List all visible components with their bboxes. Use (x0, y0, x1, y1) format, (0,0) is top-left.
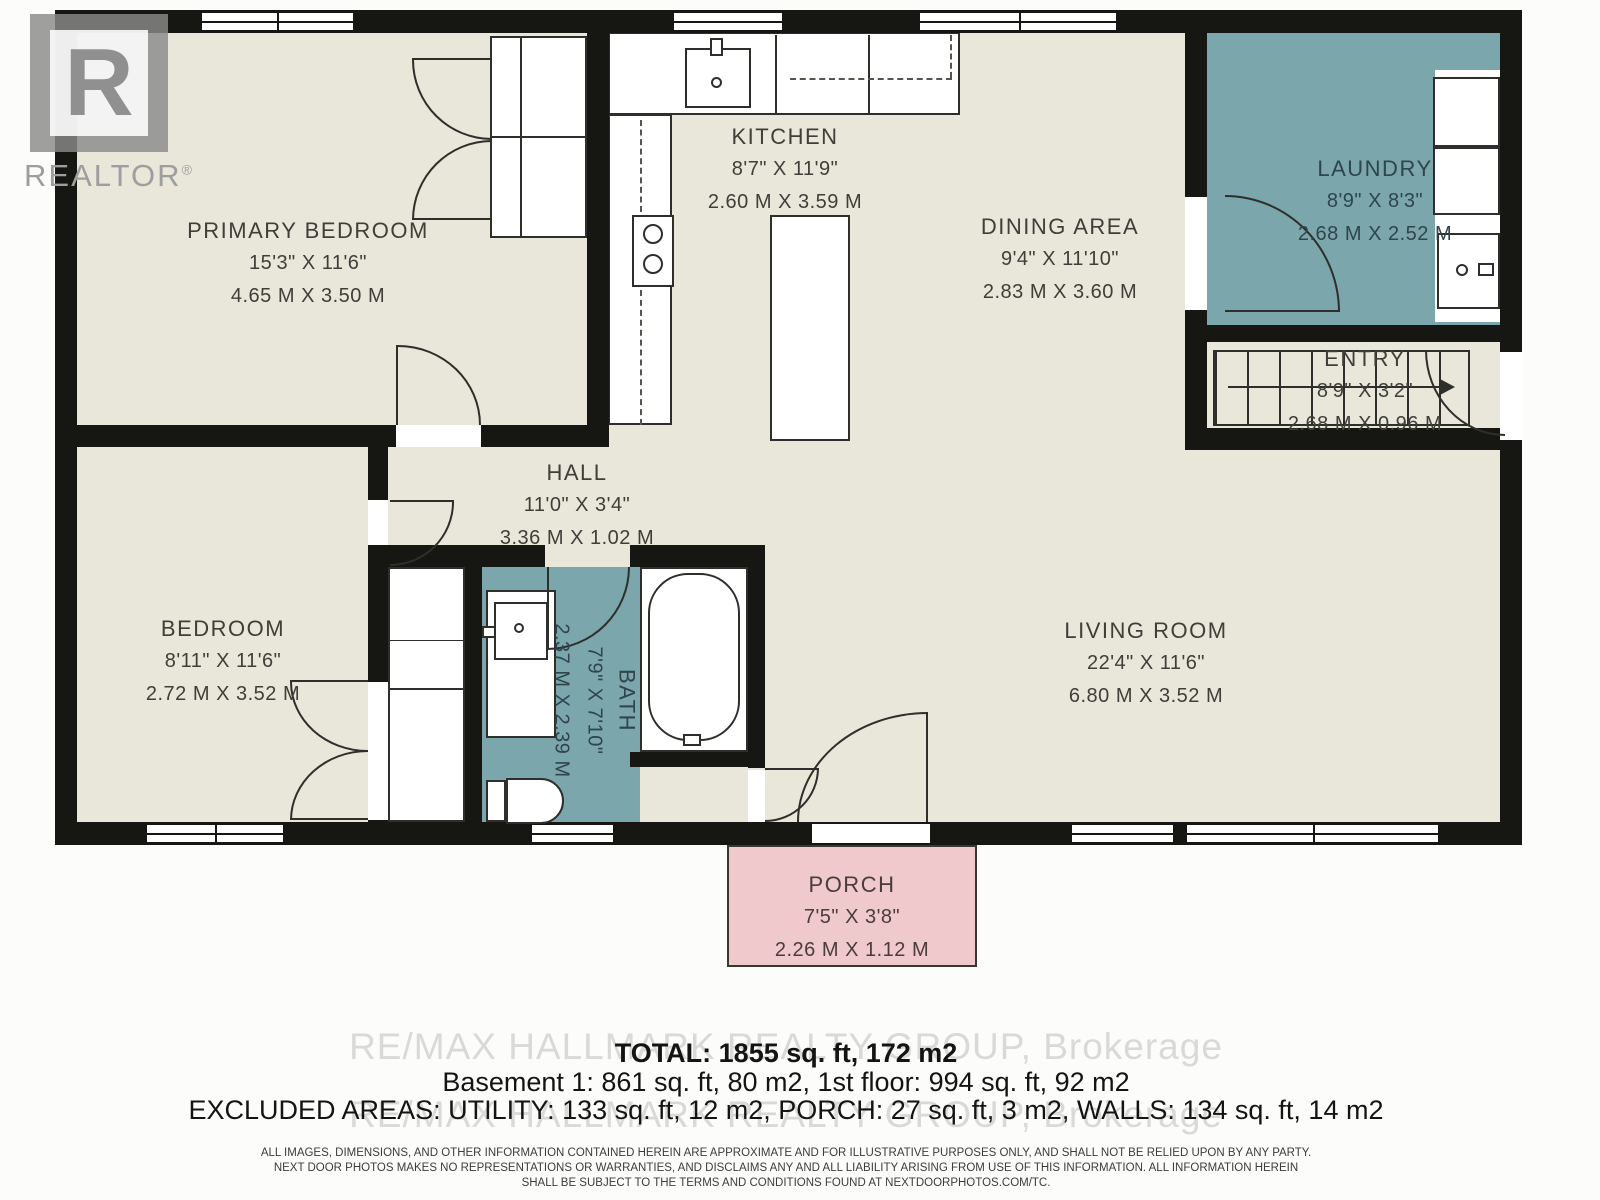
room-label-primary-bedroom: PRIMARY BEDROOM 15'3" X 11'6" 4.65 M X 3… (158, 214, 458, 313)
window (1070, 823, 1175, 844)
excluded-areas-text: EXCLUDED AREAS: UTILITY: 133 sq. ft, 12 … (0, 1095, 1572, 1126)
window (672, 11, 784, 32)
door-leaf (926, 712, 928, 822)
kitchen-counter (609, 33, 960, 115)
room-label-kitchen: KITCHEN 8'7" X 11'9" 2.60 M X 3.59 M (635, 120, 935, 219)
faucet-icon (1478, 263, 1494, 276)
window (1185, 823, 1440, 844)
realtor-logo-mark: R (50, 30, 148, 136)
floor-plan: PRIMARY BEDROOM 15'3" X 11'6" 4.65 M X 3… (0, 0, 1600, 1200)
wall (748, 545, 765, 768)
door-leaf (1225, 310, 1340, 312)
stove-burner (643, 224, 663, 244)
disclaimer-line: NEXT DOOR PHOTOS MAKES NO REPRESENTATION… (0, 1161, 1572, 1176)
kitchen-island (770, 215, 850, 441)
door-leaf (396, 345, 398, 425)
door-opening (396, 425, 481, 447)
sink-drain (514, 623, 524, 633)
window (918, 11, 1118, 32)
room-label-living-room: LIVING ROOM 22'4" X 11'6" 6.80 M X 3.52 … (996, 614, 1296, 713)
window (200, 11, 355, 32)
door-opening (748, 770, 765, 822)
door-leaf (765, 768, 819, 770)
wall (481, 425, 609, 447)
disclaimer-line: SHALL BE SUBJECT TO THE TERMS AND CONDIT… (0, 1176, 1572, 1191)
disclaimer-line: ALL IMAGES, DIMENSIONS, AND OTHER INFORM… (0, 1146, 1572, 1161)
tub-drain (1456, 264, 1468, 276)
room-label-hall: HALL 11'0" X 3'4" 3.36 M X 1.02 M (427, 456, 727, 555)
wall (465, 567, 482, 822)
closet-shelf (492, 136, 585, 138)
upper-cabinet-line (950, 35, 952, 78)
room-label-porch: PORCH 7'5" X 3'8" 2.26 M X 1.12 M (727, 868, 977, 967)
wall (55, 425, 396, 447)
realtor-logo-text: REALTOR® (24, 158, 194, 194)
door-leaf (412, 58, 492, 60)
room-label-bedroom: BEDROOM 8'11" X 11'6" 2.72 M X 3.52 M (73, 612, 373, 711)
window (530, 823, 615, 844)
tub-faucet-icon (683, 734, 701, 746)
window (145, 823, 285, 844)
toilet-tank (486, 780, 506, 822)
porch-door-opening (812, 824, 930, 843)
closet-shelf (390, 640, 463, 641)
wall (587, 33, 609, 447)
utility-closet-floor (640, 767, 748, 822)
realtor-logo: R (30, 14, 168, 152)
floor-areas-text: Basement 1: 861 sq. ft, 80 m2, 1st floor… (0, 1067, 1572, 1098)
sink-drain (711, 77, 722, 88)
room-label-laundry: LAUNDRY 8'9" X 8'3" 2.68 M X 2.52 M (1225, 152, 1525, 251)
counter-divider (868, 35, 870, 113)
stove-burner (643, 254, 663, 274)
room-label-entry: ENTRY 8'9" X 3'2" 2.68 M X 0.96 M (1215, 342, 1515, 441)
realtor-r-icon: R (64, 35, 133, 131)
closet-shelf (390, 688, 463, 690)
washer (1433, 77, 1500, 147)
room-label-bath: BATH 7'9" X 7'10" 2.37 M X 2.39 M (545, 586, 644, 816)
room-label-dining-area: DINING AREA 9'4" X 11'10" 2.83 M X 3.60 … (910, 210, 1210, 309)
closet (388, 567, 465, 822)
total-area-text: TOTAL: 1855 sq. ft, 172 m2 (0, 1038, 1572, 1069)
wall (1185, 342, 1207, 428)
counter-divider (775, 35, 777, 113)
faucet-icon (482, 626, 496, 638)
wall (630, 752, 748, 767)
bathtub (648, 573, 740, 741)
upper-cabinet-line (790, 78, 952, 80)
upper-cabinet-line (640, 290, 642, 425)
door-leaf (290, 818, 368, 820)
faucet-icon (710, 38, 723, 56)
wall (1207, 325, 1500, 342)
